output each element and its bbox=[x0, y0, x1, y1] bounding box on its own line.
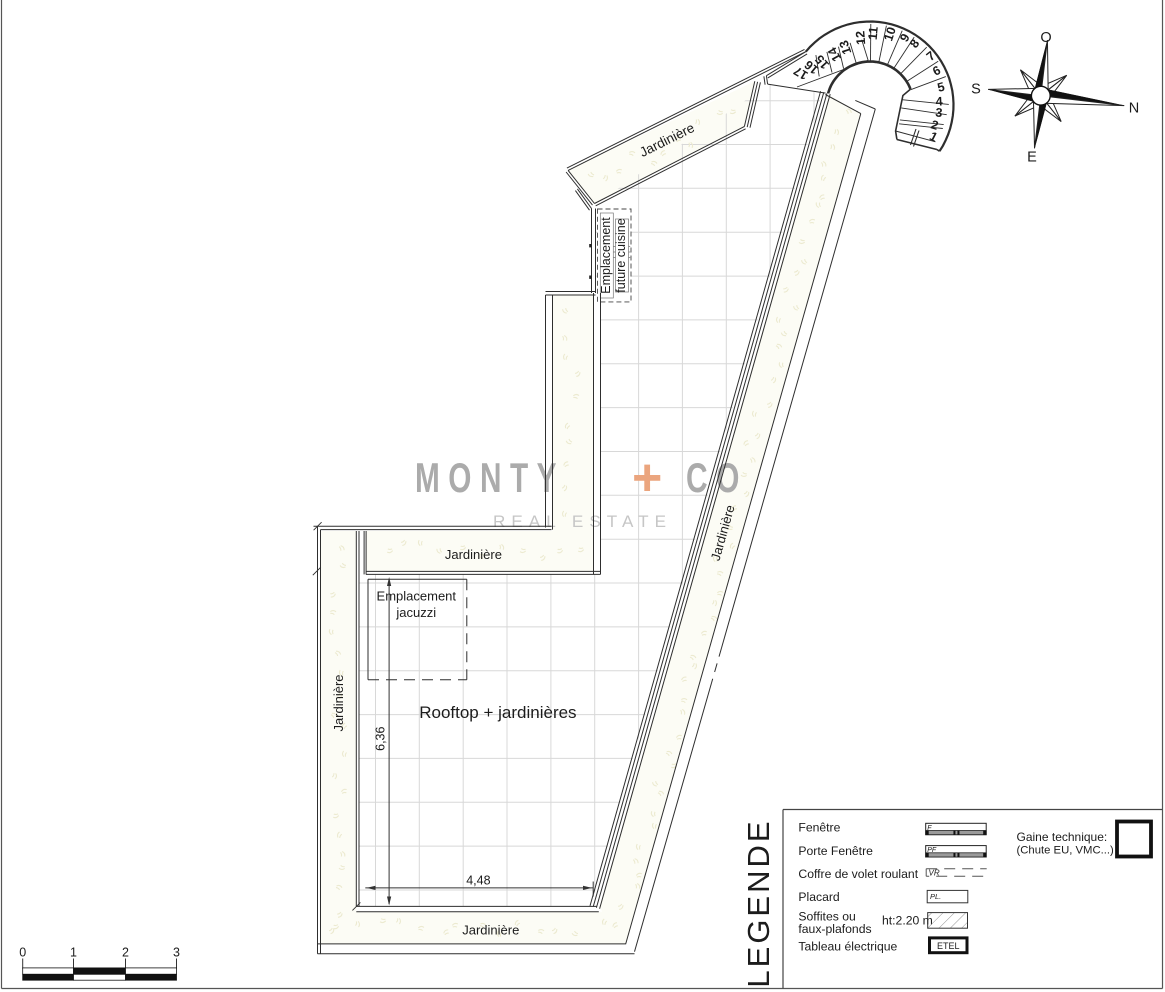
svg-text:future cuisine: future cuisine bbox=[614, 218, 628, 292]
svg-text:O: O bbox=[1040, 30, 1051, 46]
svg-text:2: 2 bbox=[122, 946, 129, 960]
svg-text:Gaine technique:: Gaine technique: bbox=[1017, 830, 1108, 844]
svg-text:F: F bbox=[927, 825, 932, 832]
svg-text:6,36: 6,36 bbox=[374, 726, 388, 750]
svg-text:Jardinière: Jardinière bbox=[462, 923, 519, 938]
svg-text:Tableau électrique: Tableau électrique bbox=[798, 940, 897, 954]
svg-text:LEGENDE: LEGENDE bbox=[741, 818, 776, 987]
svg-text:N: N bbox=[1129, 101, 1139, 117]
svg-text:4,48: 4,48 bbox=[466, 874, 490, 888]
svg-text:ETEL: ETEL bbox=[937, 941, 960, 951]
svg-text:faux-plafonds: faux-plafonds bbox=[798, 922, 871, 936]
svg-text:4: 4 bbox=[935, 94, 943, 108]
svg-text:Jardinière: Jardinière bbox=[331, 674, 346, 731]
svg-text:Rooftop + jardinières: Rooftop + jardinières bbox=[419, 703, 576, 722]
svg-text:MONTY: MONTY bbox=[415, 454, 565, 501]
svg-text:1: 1 bbox=[70, 946, 77, 960]
svg-text:0: 0 bbox=[19, 946, 26, 960]
svg-text:Coffre de volet roulant: Coffre de volet roulant bbox=[798, 867, 918, 881]
svg-text:Fenêtre: Fenêtre bbox=[798, 821, 840, 835]
svg-text:Emplacement: Emplacement bbox=[377, 589, 457, 604]
svg-text:Jardinière: Jardinière bbox=[445, 547, 502, 562]
svg-text:ht:2.20 m: ht:2.20 m bbox=[882, 914, 933, 928]
svg-text:REAL ESTATE: REAL ESTATE bbox=[493, 512, 672, 531]
svg-text:S: S bbox=[971, 82, 981, 98]
svg-text:(Chute EU, VMC...): (Chute EU, VMC...) bbox=[1017, 845, 1115, 857]
svg-text:E: E bbox=[1027, 150, 1037, 166]
svg-text:PL.: PL. bbox=[930, 892, 941, 901]
svg-text:Emplacement: Emplacement bbox=[599, 217, 613, 294]
svg-text:3: 3 bbox=[173, 946, 180, 960]
svg-text:Placard: Placard bbox=[798, 890, 839, 904]
svg-text:VR: VR bbox=[929, 869, 940, 878]
svg-text:11: 11 bbox=[866, 26, 881, 41]
svg-text:12: 12 bbox=[853, 30, 868, 45]
svg-text:jacuzzi: jacuzzi bbox=[395, 605, 436, 620]
svg-text:+: + bbox=[632, 449, 662, 507]
svg-text:PF: PF bbox=[927, 847, 937, 854]
svg-text:Porte Fenêtre: Porte Fenêtre bbox=[798, 844, 873, 858]
